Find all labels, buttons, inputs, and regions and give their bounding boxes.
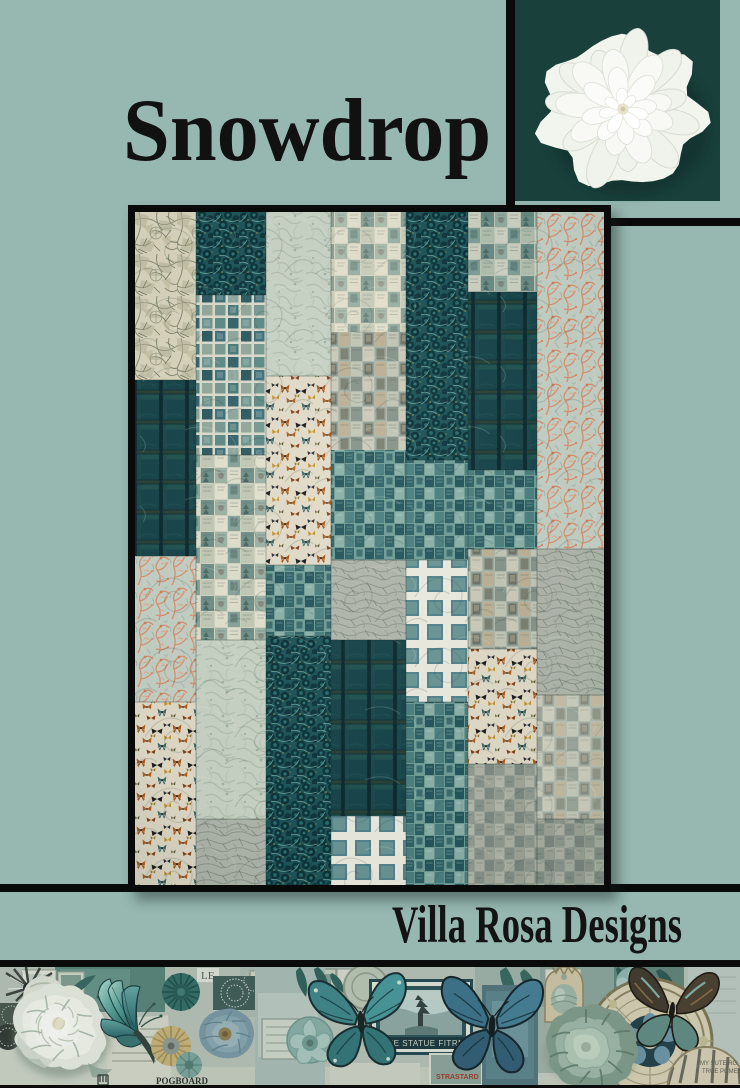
- svg-text:TRUE POMES: TRUE POMES: [702, 1069, 740, 1075]
- svg-text:MY SUTE RG: MY SUTE RG: [700, 1061, 738, 1067]
